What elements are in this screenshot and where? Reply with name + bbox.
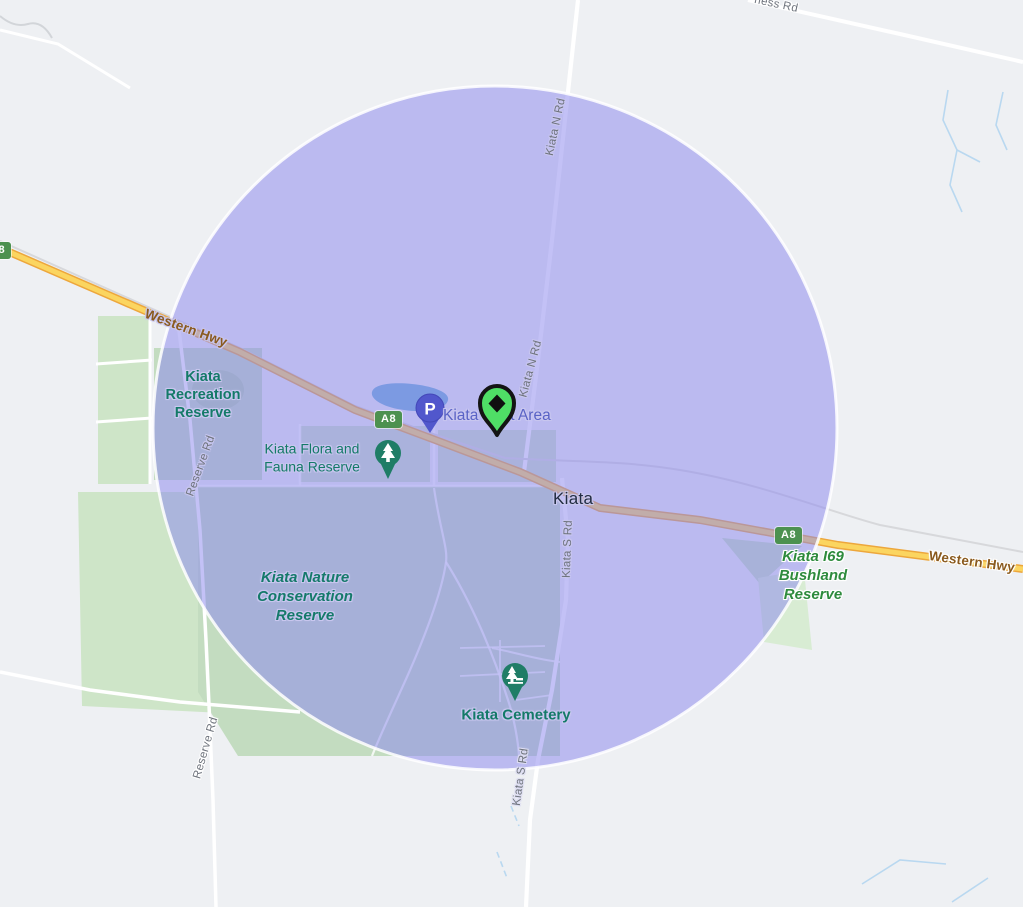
- route-shield-a8-left: A8: [0, 242, 11, 259]
- town-label-kiata[interactable]: Kiata: [553, 488, 593, 509]
- i69-bushland-reserve-label[interactable]: Kiata I69 Bushland Reserve: [779, 548, 847, 604]
- map-base-layer: P: [0, 0, 1023, 907]
- kiata-s-rd-label-north: Kiata S Rd: [560, 520, 576, 578]
- gravestone-icon: [516, 678, 523, 680]
- recreation-reserve-label[interactable]: Kiata Recreation Reserve: [166, 368, 241, 422]
- map-canvas[interactable]: P A8 A8 A8 Western Hwy Western Hwy Kiata…: [0, 0, 1023, 907]
- flora-fauna-reserve-label[interactable]: Kiata Flora and Fauna Reserve: [264, 441, 360, 476]
- cemetery-label[interactable]: Kiata Cemetery: [461, 707, 570, 726]
- parking-icon: P: [424, 400, 435, 419]
- nature-conservation-reserve-label[interactable]: Kiata Nature Conservation Reserve: [257, 569, 353, 625]
- route-shield-a8-mid: A8: [375, 411, 402, 428]
- route-shield-a8-right: A8: [775, 527, 802, 544]
